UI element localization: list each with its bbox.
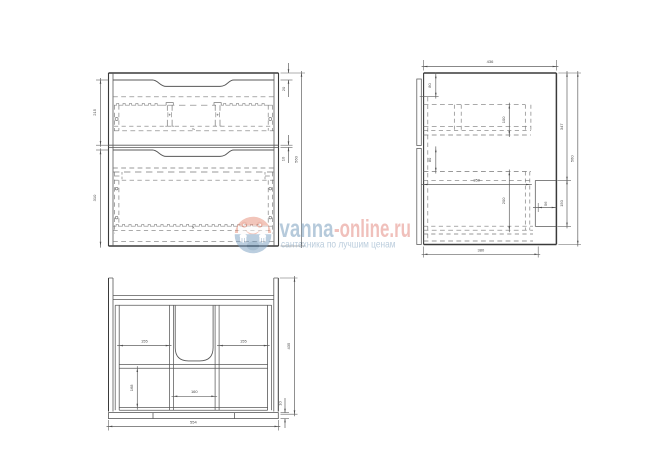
svg-text:560: 560 xyxy=(293,155,298,162)
svg-text:200: 200 xyxy=(501,197,506,204)
svg-text:310: 310 xyxy=(92,194,97,201)
svg-text:155: 155 xyxy=(141,338,148,343)
svg-text:347: 347 xyxy=(559,123,564,130)
svg-text:215: 215 xyxy=(92,108,97,115)
svg-text:436: 436 xyxy=(487,59,494,64)
svg-text:80: 80 xyxy=(427,157,432,162)
svg-text:554: 554 xyxy=(190,419,197,424)
svg-text:160: 160 xyxy=(191,389,198,394)
svg-text:10: 10 xyxy=(278,401,283,406)
svg-text:168: 168 xyxy=(129,384,134,391)
svg-text:100: 100 xyxy=(501,116,506,123)
svg-text:435: 435 xyxy=(286,342,291,349)
svg-text:10: 10 xyxy=(280,156,285,161)
svg-text:80: 80 xyxy=(427,83,432,88)
svg-text:56: 56 xyxy=(543,201,548,206)
svg-text:сантехника по лучшим ценам: сантехника по лучшим ценам xyxy=(281,238,396,250)
svg-text:20: 20 xyxy=(281,86,286,91)
svg-text:380: 380 xyxy=(478,248,485,253)
svg-text:350: 350 xyxy=(473,178,480,183)
svg-text:560: 560 xyxy=(570,155,575,162)
svg-text:155: 155 xyxy=(240,338,247,343)
svg-text:150: 150 xyxy=(559,199,564,206)
